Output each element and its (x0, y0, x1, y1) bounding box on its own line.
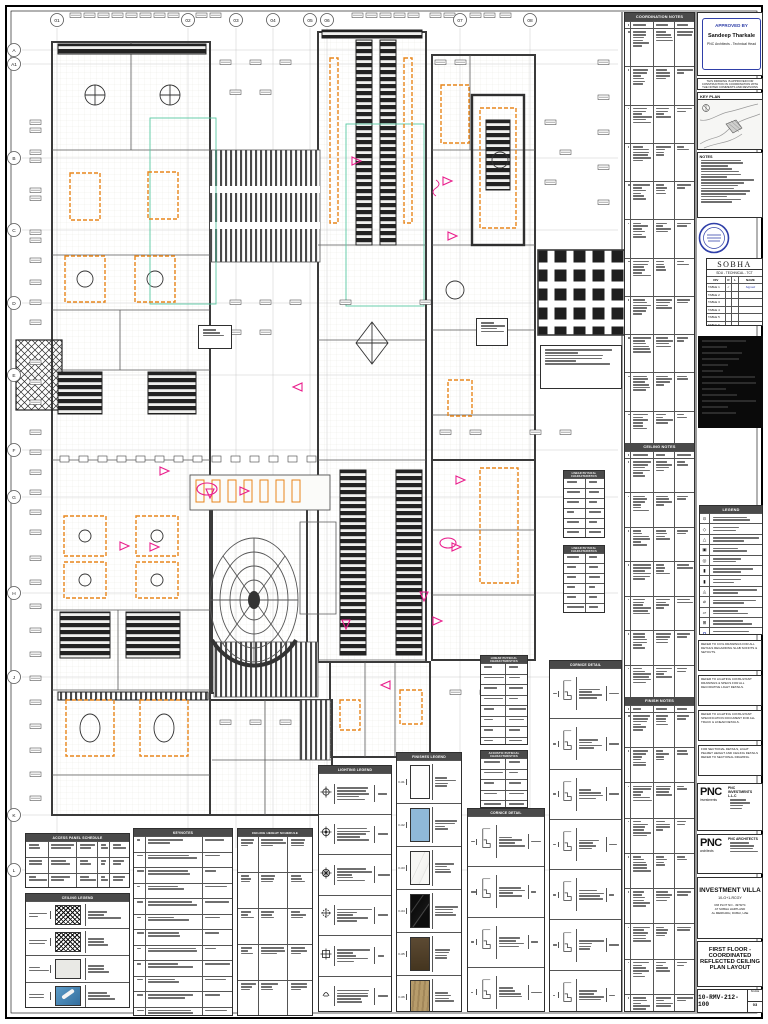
grid-bubble-label: D (12, 301, 16, 307)
legend-row: ◎ (700, 555, 762, 565)
panel (702, 400, 756, 402)
grid-bubble-label: 03 (233, 18, 239, 24)
legend-symbol: ▮ (700, 576, 710, 587)
panel: TABLE 1 (707, 284, 726, 291)
legend-text (710, 608, 762, 617)
grid-bubble-label: 04 (270, 18, 276, 24)
panel: TABLE 5 (707, 313, 762, 321)
legend-symbol: ▮ (700, 565, 710, 576)
panel (732, 314, 739, 321)
grid-bubble-label: A1 (11, 62, 17, 68)
legend-symbol: ▣ (700, 544, 710, 555)
round-stamp (697, 220, 763, 256)
legend-row: ⊙ (700, 513, 762, 523)
grid-bubble-label: 02 (185, 18, 191, 24)
approval-label: APPROVED BY (703, 23, 760, 28)
legend-row: △ (700, 534, 762, 544)
reference-note-text: REFER TO LIGHTING CONSULTANT DRAWINGS & … (701, 678, 759, 689)
sobha-logo: SOBHA (707, 260, 762, 269)
panel: TABLE 4 (707, 307, 726, 314)
panel (702, 388, 726, 390)
legend-row: ▮ (700, 565, 762, 575)
reference-note-text: REFER TO CIVIL DRAWINGS FOR ALL DETAILS … (701, 643, 759, 654)
grid-bubble-label: L (13, 868, 16, 874)
legend-symbol: ⌀ (700, 596, 710, 607)
project-title-block: INVESTMENT VILLA 10-G+1-RCGY RM PLOT NO … (697, 877, 763, 939)
legend-text (710, 618, 762, 627)
panel (739, 322, 762, 327)
sobha-sign-table: DIVRLNAMETABLE 1✓SignedTABLE 2TABLE 3TAB… (707, 276, 762, 326)
legend-text (710, 525, 762, 534)
grid-bubble-label: 07 (457, 18, 463, 24)
legend-row: ◬ (700, 586, 762, 596)
dark-materials-panel (698, 336, 763, 428)
key-plan: KEY PLAN (697, 92, 763, 150)
project-addr-3: AL MERKADH, DUBAI, UAE (698, 911, 762, 915)
legend-symbol: ◎ (700, 555, 710, 566)
approval-stamp: APPROVED BY Sandeep Tharkale PNC Archite… (697, 12, 763, 76)
legend-text (710, 577, 762, 586)
legend-symbol: △ (700, 534, 710, 545)
legend-symbol: ▱ (700, 607, 710, 618)
grid-bubble-label: 01 (54, 18, 60, 24)
pnc-inv-logo: PNC (700, 786, 724, 798)
legend-text (710, 556, 762, 565)
panel (732, 292, 739, 299)
project-code: 10-G+1-RCGY (698, 896, 762, 900)
pnc-arch-logo: PNC (700, 837, 724, 849)
sobha-col-NAME: NAME (739, 277, 762, 283)
legend-row: Q (700, 627, 762, 635)
panel (732, 284, 739, 291)
legend-symbol: ◇ (700, 524, 710, 535)
legend-row: ◇ (700, 523, 762, 533)
legend-symbol: ◬ (700, 586, 710, 597)
panel (702, 382, 756, 384)
panel (702, 376, 755, 378)
panel: TABLE 2 (707, 291, 762, 299)
panel (702, 352, 742, 354)
grid-bubble-label: B (12, 156, 15, 162)
legend-text (710, 629, 762, 635)
notes-block: NOTES (697, 152, 763, 218)
key-plan-map (698, 100, 762, 150)
notes-title: NOTES (700, 155, 761, 159)
panel (702, 346, 727, 348)
grid-bubble-label: 05 (307, 18, 313, 24)
panel (739, 299, 762, 306)
project-name: INVESTMENT VILLA (698, 887, 762, 894)
panel (726, 299, 733, 306)
panel (702, 340, 746, 342)
pnc-inv-name: PNC INVESTMENTS L.L.C (728, 786, 760, 798)
grid-bubble-label: H (12, 591, 16, 597)
panel (702, 394, 737, 396)
panel (702, 370, 723, 372)
panel: Signed (739, 284, 762, 291)
approver-name: Sandeep Tharkale (703, 33, 760, 39)
approval-stamp-frame: APPROVED BY Sandeep Tharkale PNC Archite… (702, 18, 761, 70)
panel (739, 314, 762, 321)
sobha-col-L: L (732, 277, 739, 283)
pnc-arch-tag: architects (700, 849, 724, 853)
panel (702, 412, 736, 414)
sobha-col-R: R (726, 277, 733, 283)
reference-note-text: FOR SECTIONAL DETAILS, LIGHT PELMET HEIG… (701, 748, 759, 759)
legend-row: ▣ (700, 544, 762, 554)
scale-label: SCALE (748, 990, 762, 1002)
sobha-col-DIV: DIV (707, 277, 726, 283)
legend-symbol: ⊞ (700, 617, 710, 628)
pnc-inv-tag: investments (700, 798, 724, 802)
pnc-arch-name: PNC ARCHITECTS (728, 837, 760, 841)
panel: TABLE 3 (707, 298, 762, 306)
floor-plan-canvas: 0102030405060708AA1BCDEFGHJKL (0, 0, 768, 1024)
grid-bubble-label: F (13, 448, 16, 454)
grid-bubble-label: G (12, 495, 16, 501)
grid-bubble-label: C (12, 228, 16, 234)
panel (732, 299, 739, 306)
legend-row: ▮ (700, 575, 762, 585)
pnc-investments-block: PNC investments PNC INVESTMENTS L.L.C (697, 783, 763, 831)
panel: TABLE 4 (707, 306, 762, 314)
panel (739, 307, 762, 314)
panel (732, 322, 739, 327)
legend-symbol: Q (700, 628, 710, 636)
legend-symbol: ⊙ (700, 513, 710, 524)
legend-text (710, 535, 762, 544)
symbol-legend: LEGEND ⊙◇△▣◎▮▮◬⌀▱⊞Q (699, 505, 763, 635)
panel (702, 364, 728, 366)
approval-note: THIS DRAWING IS APPROVED FOR CONSTRUCTIO… (697, 78, 763, 90)
panel (726, 292, 733, 299)
panel: TABLE 1✓Signed (707, 283, 762, 291)
legend-text (710, 545, 762, 554)
pnc-architects-block: PNC architects PNC ARCHITECTS (697, 834, 763, 874)
sheet-title-block: FIRST FLOOR - COORDINATED REFLECTED CEIL… (697, 941, 763, 987)
sobha-dept: SDU - TECHNICAL - TCT (707, 269, 762, 276)
grid-bubble-label: 08 (527, 18, 533, 24)
sheet-number-block: 10-RMV-212-100 SCALE 03 (697, 989, 763, 1013)
panel: ✓ (726, 284, 733, 291)
grid-bubble-label: 06 (324, 18, 330, 24)
reference-note-box: REFER TO LIGHTING CONSULTANT DRAWINGS & … (698, 675, 762, 706)
panel: TABLE 6 (707, 321, 762, 327)
legend-text (710, 566, 762, 575)
sheet-title-line: PLAN LAYOUT (698, 965, 762, 971)
reference-note-box: FOR SECTIONAL DETAILS, LIGHT PELMET HEIG… (698, 745, 762, 776)
panel: TABLE 3 (707, 299, 726, 306)
legend-row: ⌀ (700, 596, 762, 606)
panel: TABLE 6 (707, 322, 726, 327)
legend-title: LEGEND (700, 506, 762, 513)
reference-notes: REFER TO CIVIL DRAWINGS FOR ALL DETAILS … (698, 640, 764, 780)
panel (739, 292, 762, 299)
panel (726, 314, 733, 321)
grid-bubble-label: E (12, 373, 15, 379)
sheet-number: 10-RMV-212-100 (698, 994, 747, 1008)
approver-role: PNC Architects - Technical Head (703, 42, 760, 46)
legend-text (710, 514, 762, 523)
legend-row: ⊞ (700, 617, 762, 627)
legend-text (710, 587, 762, 596)
reference-note-box: REFER TO LIGHTING CONSULTANT SPECIFICATI… (698, 710, 762, 741)
sobha-review-block: SOBHA SDU - TECHNICAL - TCT DIVRLNAMETAB… (706, 258, 763, 326)
legend-row: ▱ (700, 607, 762, 617)
panel: TABLE 5 (707, 314, 726, 321)
panel (726, 322, 733, 327)
drawing-sheet: 0102030405060708AA1BCDEFGHJKL APPROVED B… (0, 0, 768, 1024)
panel: TABLE 2 (707, 292, 726, 299)
revision: 03 (748, 1002, 762, 1013)
notes-text (700, 160, 761, 203)
panel (702, 406, 728, 408)
key-plan-title: KEY PLAN (698, 93, 762, 100)
reference-note-text: REFER TO LIGHTING CONSULTANT SPECIFICATI… (701, 713, 759, 724)
panel (702, 358, 739, 360)
panel (732, 307, 739, 314)
legend-text (710, 597, 762, 606)
reference-note-box: REFER TO CIVIL DRAWINGS FOR ALL DETAILS … (698, 640, 762, 671)
panel (726, 307, 733, 314)
panel: DIVRLNAME (707, 276, 762, 283)
